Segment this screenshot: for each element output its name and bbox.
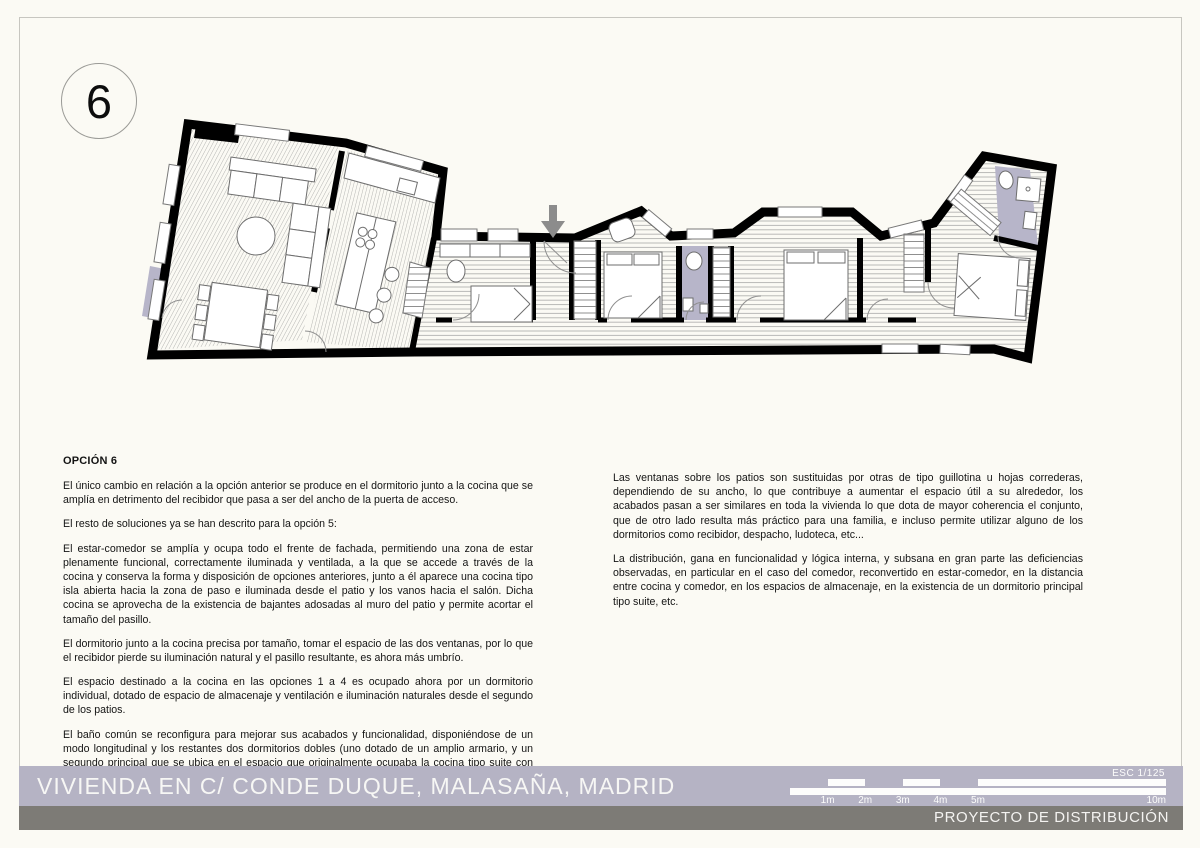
sheet-title: VIVIENDA EN C/ CONDE DUQUE, MALASAÑA, MA…	[37, 773, 675, 800]
scale-tick: 5m	[971, 795, 985, 806]
subtitle-bar: PROYECTO DE DISTRIBUCIÓN	[19, 806, 1183, 830]
notes-right-column: Las ventanas sobre los patios son sustit…	[613, 471, 1083, 619]
paragraph: La distribución, gana en funcionalidad y…	[613, 552, 1083, 609]
scale-label: ESC 1/125	[1112, 768, 1165, 779]
scale-tick: 10m	[1147, 795, 1166, 806]
chair-bed1	[447, 260, 465, 282]
paragraph: El único cambio en relación a la opción …	[63, 479, 533, 507]
paragraph: El estar-comedor se amplía y ocupa todo …	[63, 542, 533, 627]
option-heading: OPCIÓN 6	[63, 455, 533, 467]
entry-arrow-icon	[541, 205, 565, 238]
title-bar: VIVIENDA EN C/ CONDE DUQUE, MALASAÑA, MA…	[19, 766, 1183, 806]
scale-tick: 4m	[933, 795, 947, 806]
scale-segment	[903, 779, 941, 786]
paragraph: El dormitorio junto a la cocina precisa …	[63, 637, 533, 665]
scale-tick: 2m	[858, 795, 872, 806]
scale-segment	[828, 779, 866, 786]
wardrobe-bed1	[440, 244, 530, 257]
dining-table	[192, 281, 279, 351]
sheet-subtitle: PROYECTO DE DISTRIBUCIÓN	[934, 809, 1169, 826]
paragraph: El resto de soluciones ya se han descrit…	[63, 517, 533, 531]
scale-segment	[978, 779, 1166, 786]
round-table	[237, 217, 275, 255]
bed-individual	[471, 286, 532, 322]
sink-common	[683, 298, 693, 311]
scale-tick: 1m	[821, 795, 835, 806]
scale-rod	[790, 788, 1166, 795]
paragraph: Las ventanas sobre los patios son sustit…	[613, 471, 1083, 542]
sink-suite	[1023, 211, 1037, 229]
paragraph: El espacio destinado a la cocina en las …	[63, 675, 533, 718]
bed-suite	[954, 254, 1030, 321]
scale-tick: 3m	[896, 795, 910, 806]
scale-bar: ESC 1/125 1m 2m 3m 4m 5m 10m	[790, 767, 1166, 805]
toilet-common	[686, 252, 702, 270]
notes-left-column: OPCIÓN 6 El único cambio en relación a l…	[63, 455, 533, 809]
